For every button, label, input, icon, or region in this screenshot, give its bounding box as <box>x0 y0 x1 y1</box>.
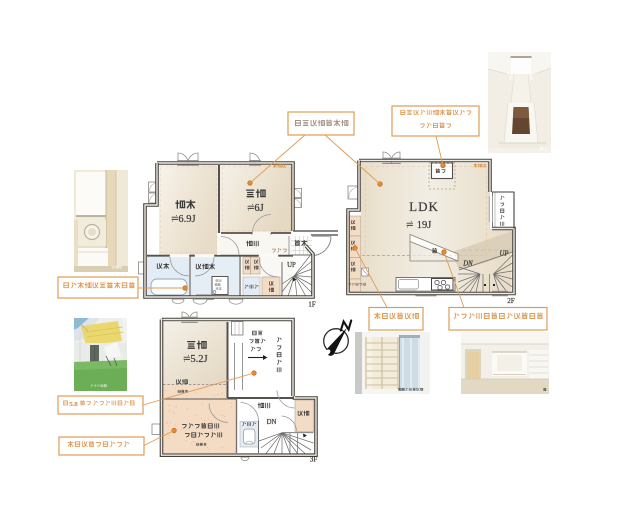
svg-text:19J: 19J <box>417 220 432 231</box>
svg-text:1F: 1F <box>308 301 316 309</box>
svg-text:LDK: LDK <box>409 199 439 214</box>
svg-text:6J: 6J <box>254 203 263 214</box>
svg-text:DN: DN <box>462 261 473 268</box>
svg-text:UP: UP <box>287 262 296 269</box>
svg-text:UP: UP <box>499 251 508 258</box>
svg-text:2F: 2F <box>507 297 515 305</box>
svg-text:DN: DN <box>267 419 277 426</box>
svg-text:6.9J: 6.9J <box>178 214 195 225</box>
svg-text:3F: 3F <box>310 456 318 464</box>
svg-text:5.8: 5.8 <box>69 401 78 408</box>
svg-text:5.2J: 5.2J <box>190 354 207 365</box>
